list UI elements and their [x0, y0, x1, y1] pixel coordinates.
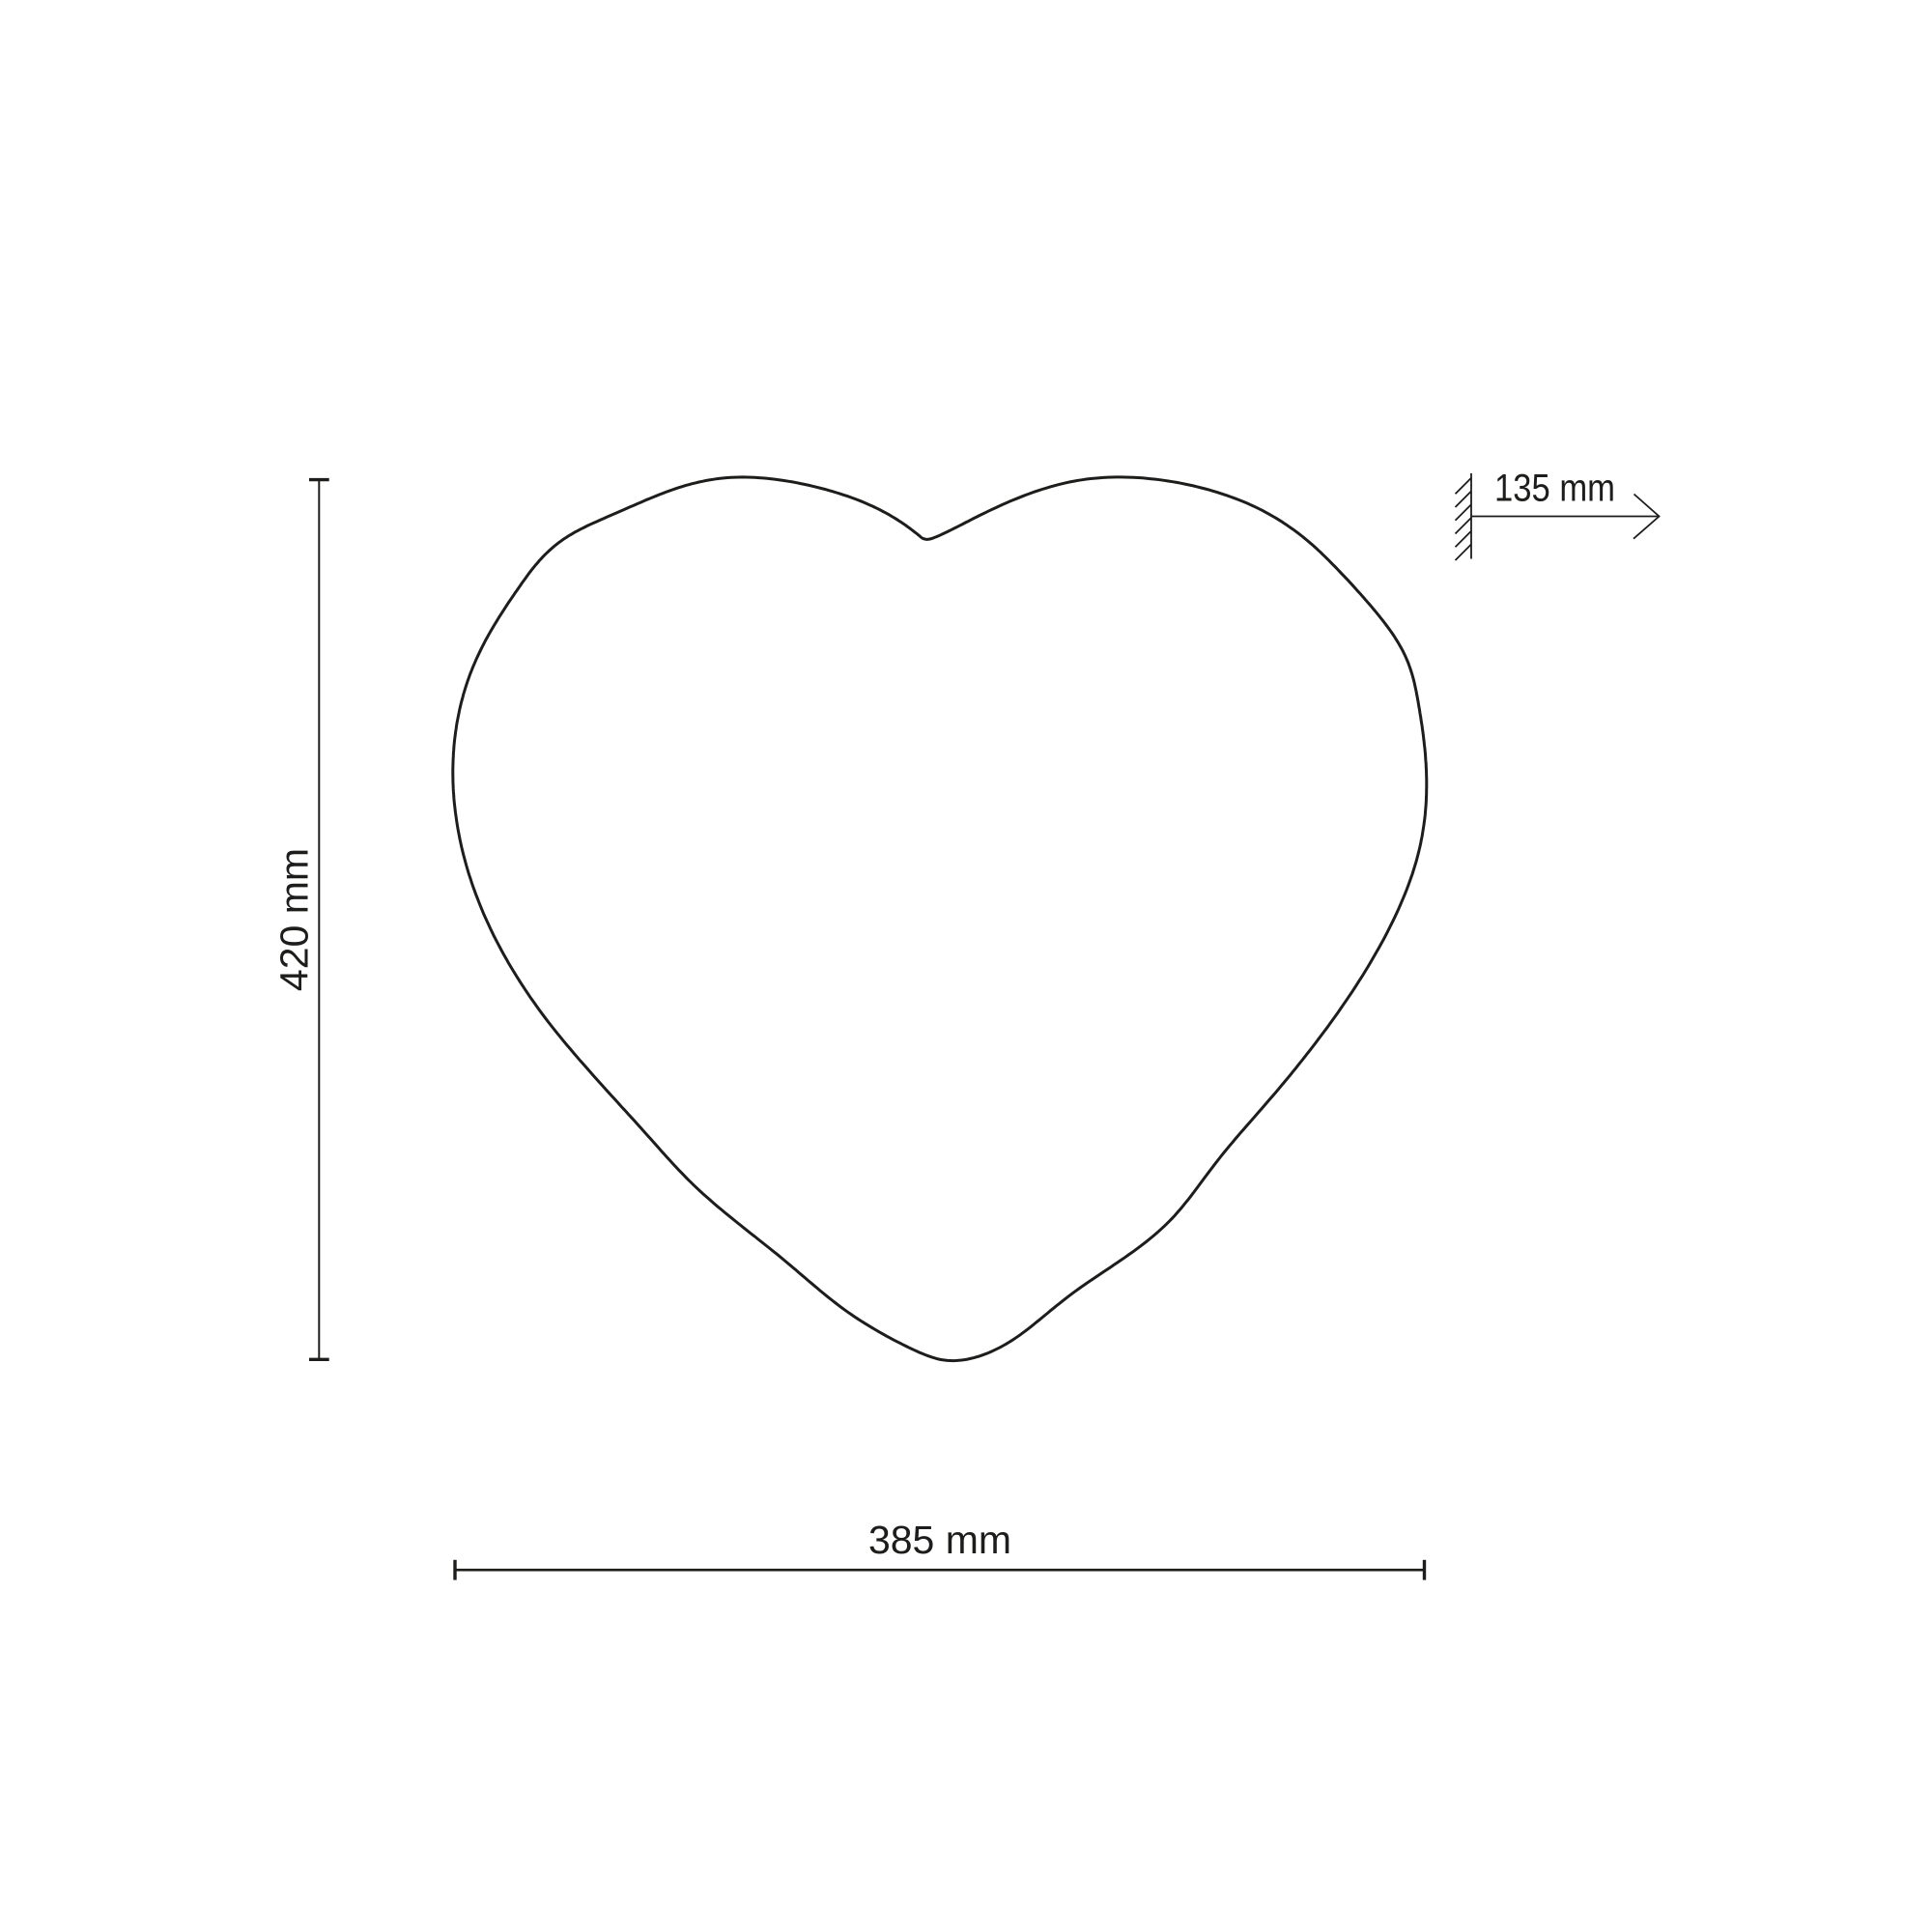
svg-text:420 mm: 420 mm	[272, 848, 317, 991]
svg-text:385 mm: 385 mm	[868, 1518, 1011, 1562]
svg-text:135 mm: 135 mm	[1494, 468, 1615, 510]
